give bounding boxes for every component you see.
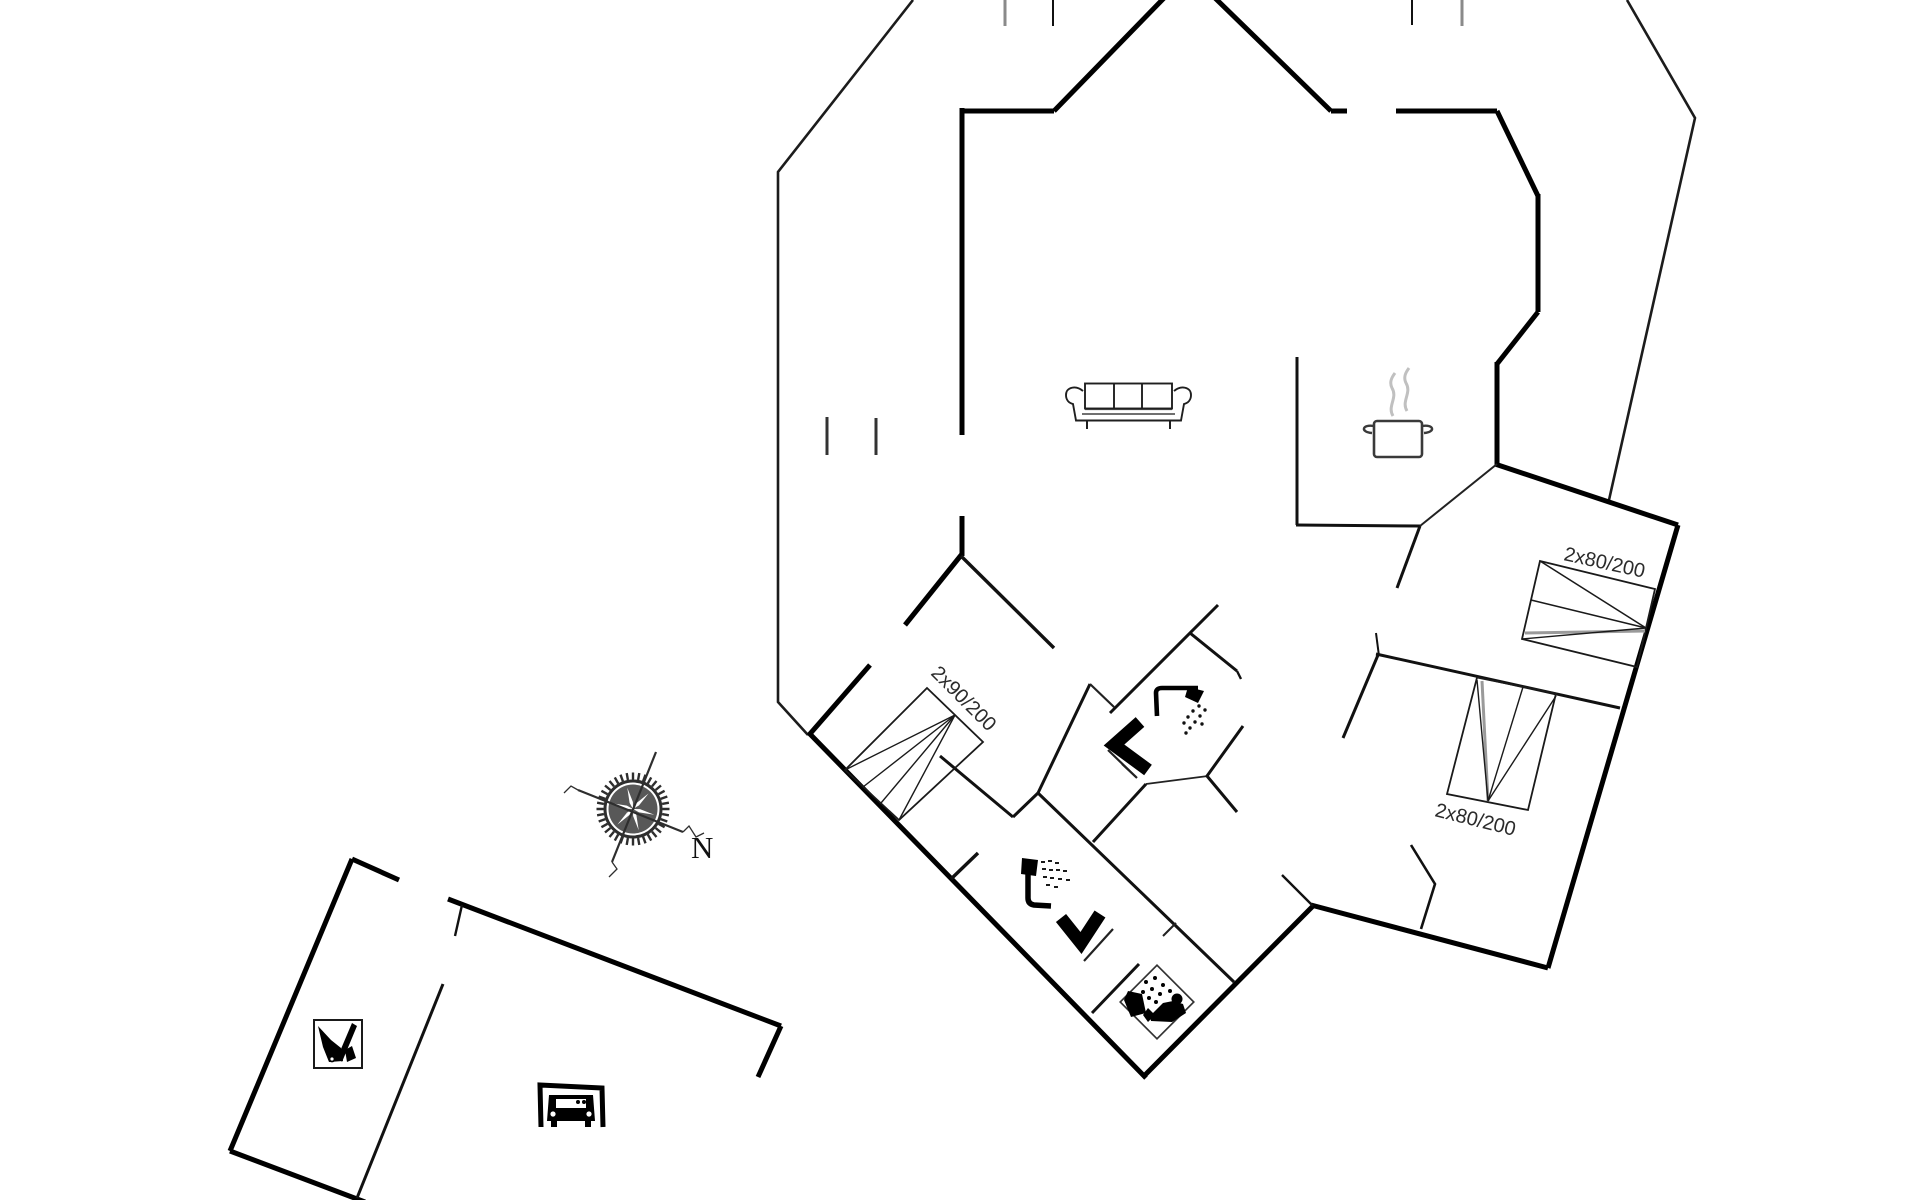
svg-text:N: N [691, 830, 713, 865]
